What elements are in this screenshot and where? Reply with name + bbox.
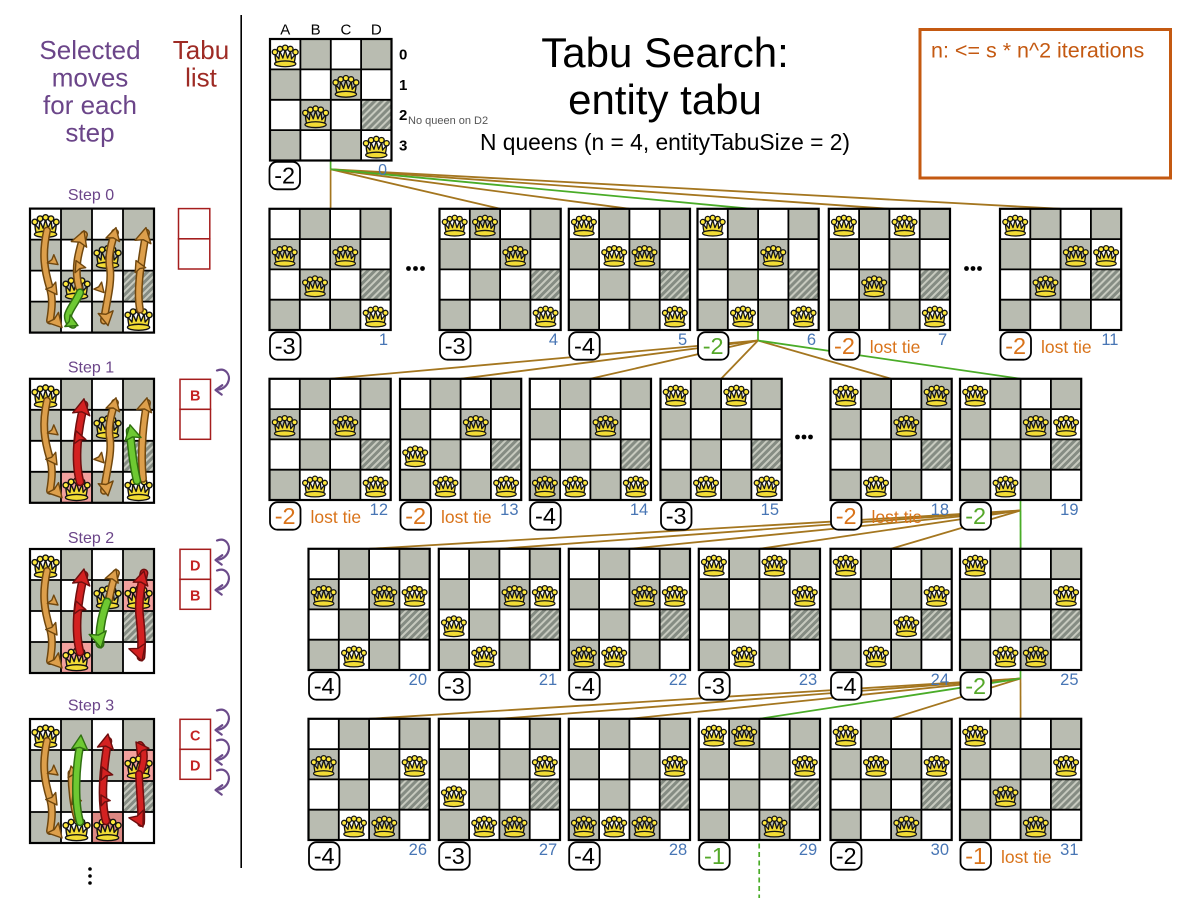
svg-text:5: 5 — [678, 331, 687, 349]
svg-text:27: 27 — [539, 841, 557, 859]
svg-text:lost tie: lost tie — [1001, 847, 1052, 867]
svg-text:n: <= s * n^2 iterations: n: <= s * n^2 iterations — [931, 39, 1144, 63]
svg-text:25: 25 — [1060, 671, 1078, 689]
svg-text:lost tie: lost tie — [441, 507, 492, 527]
svg-text:29: 29 — [799, 841, 817, 859]
svg-text:28: 28 — [669, 841, 687, 859]
svg-text:-4: -4 — [836, 673, 857, 699]
svg-text:-4: -4 — [535, 503, 556, 529]
svg-text:-2: -2 — [965, 503, 986, 529]
svg-text:Tabu: Tabu — [173, 35, 229, 65]
svg-text:21: 21 — [539, 671, 557, 689]
svg-text:-4: -4 — [574, 333, 595, 359]
svg-text:-2: -2 — [836, 843, 857, 869]
svg-text:Step 0: Step 0 — [68, 187, 114, 204]
svg-text:C: C — [190, 729, 201, 745]
svg-text:-3: -3 — [704, 673, 725, 699]
svg-text:step: step — [65, 118, 114, 148]
svg-text:C: C — [340, 22, 351, 39]
svg-text:-4: -4 — [574, 843, 595, 869]
svg-text:-3: -3 — [666, 503, 687, 529]
svg-text:-2: -2 — [703, 333, 724, 359]
svg-text:-4: -4 — [314, 673, 335, 699]
svg-text:-3: -3 — [445, 333, 466, 359]
svg-text:No queen on D2: No queen on D2 — [408, 115, 488, 127]
svg-text:3: 3 — [399, 138, 407, 155]
svg-text:-2: -2 — [1005, 333, 1026, 359]
svg-text:23: 23 — [799, 671, 817, 689]
svg-text:-2: -2 — [405, 503, 426, 529]
svg-text:26: 26 — [409, 841, 427, 859]
svg-text:30: 30 — [931, 841, 949, 859]
svg-text:moves: moves — [52, 63, 129, 93]
svg-text:lost tie: lost tie — [872, 507, 923, 527]
svg-text:-4: -4 — [574, 673, 595, 699]
svg-text:19: 19 — [1060, 501, 1078, 519]
svg-text:for each: for each — [43, 90, 137, 120]
svg-text:-1: -1 — [965, 843, 986, 869]
svg-text:B: B — [190, 589, 200, 605]
svg-text:15: 15 — [761, 501, 779, 519]
svg-text:24: 24 — [931, 671, 949, 689]
svg-text:18: 18 — [931, 501, 949, 519]
svg-text:-2: -2 — [274, 162, 295, 188]
svg-text:lost tie: lost tie — [1041, 337, 1092, 357]
svg-text:D: D — [190, 559, 200, 575]
svg-text:-3: -3 — [444, 843, 465, 869]
svg-text:Step 2: Step 2 — [68, 530, 114, 547]
svg-text:-2: -2 — [836, 503, 857, 529]
svg-text:0: 0 — [399, 47, 407, 64]
svg-text:Tabu Search:: Tabu Search: — [541, 29, 789, 76]
svg-text:Selected: Selected — [39, 35, 140, 65]
svg-text:Step 3: Step 3 — [68, 698, 114, 715]
svg-text:list: list — [185, 63, 218, 93]
svg-text:0: 0 — [378, 162, 387, 179]
svg-text:-1: -1 — [704, 843, 725, 869]
svg-text:2: 2 — [399, 107, 407, 124]
svg-text:Step 1: Step 1 — [68, 360, 114, 377]
svg-text:13: 13 — [500, 501, 518, 519]
svg-text:D: D — [371, 22, 382, 39]
svg-text:B: B — [311, 22, 321, 39]
svg-text:lost tie: lost tie — [311, 507, 362, 527]
svg-text:N queens (n = 4, entityTabuSiz: N queens (n = 4, entityTabuSize = 2) — [480, 129, 850, 155]
svg-text:12: 12 — [370, 501, 388, 519]
svg-text:B: B — [190, 389, 200, 405]
svg-text:-2: -2 — [965, 673, 986, 699]
svg-text:11: 11 — [1101, 331, 1118, 349]
svg-text:-3: -3 — [275, 333, 296, 359]
svg-text:4: 4 — [549, 331, 558, 349]
svg-text:1: 1 — [379, 331, 388, 349]
svg-text:-3: -3 — [444, 673, 465, 699]
svg-text:-2: -2 — [834, 333, 855, 359]
svg-text:1: 1 — [399, 77, 407, 94]
svg-text:31: 31 — [1060, 841, 1078, 859]
svg-text:D: D — [190, 759, 200, 775]
svg-text:22: 22 — [669, 671, 687, 689]
svg-text:entity tabu: entity tabu — [568, 76, 762, 123]
svg-text:A: A — [280, 22, 290, 39]
svg-text:14: 14 — [630, 501, 648, 519]
svg-text:-2: -2 — [275, 503, 296, 529]
svg-text:7: 7 — [938, 331, 947, 349]
svg-text:-4: -4 — [314, 843, 335, 869]
svg-text:20: 20 — [409, 671, 427, 689]
svg-text:lost tie: lost tie — [870, 337, 921, 357]
svg-text:6: 6 — [807, 331, 816, 349]
